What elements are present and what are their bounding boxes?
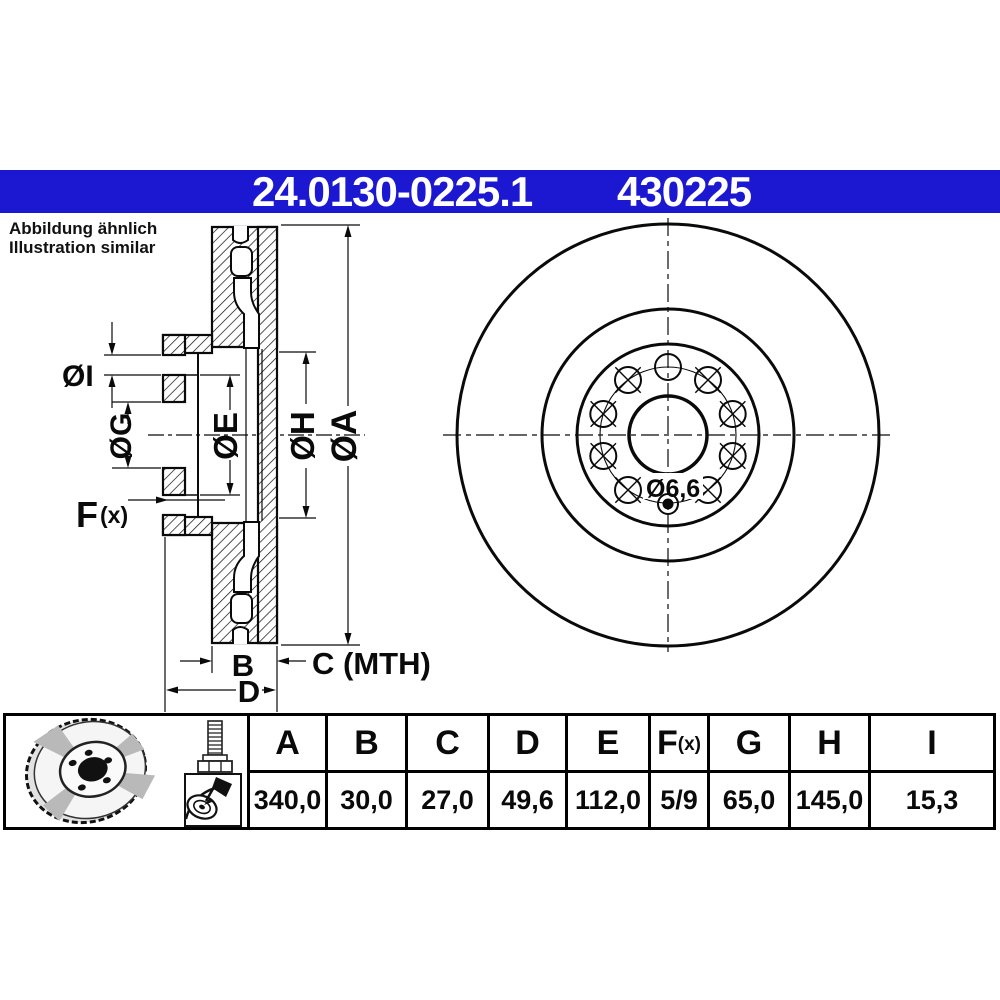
col-header: H xyxy=(791,716,868,773)
col-header: D xyxy=(490,716,565,773)
disc-paste-icon xyxy=(184,773,242,827)
col-value: 5/9 xyxy=(651,773,707,827)
col-value: 145,0 xyxy=(791,773,868,827)
table-col-d: D 49,6 xyxy=(487,716,565,827)
technical-drawing: ØI ØG ØE ØH ØA F (x) B C (MTH) D xyxy=(0,0,1000,1000)
table-photo-cell xyxy=(6,716,247,827)
dim-label-dia-i: ØI xyxy=(62,360,94,393)
table-col-f: F(x) 5/9 xyxy=(648,716,707,827)
table-col-b: B 30,0 xyxy=(325,716,405,827)
dimension-table: A 340,0 B 30,0 C 27,0 D 49,6 E 112,0 F(x… xyxy=(3,713,996,830)
col-header: A xyxy=(250,716,325,773)
dim-label-dia-a: ØA xyxy=(325,410,364,463)
table-col-a: A 340,0 xyxy=(247,716,325,827)
dim-label-f: F xyxy=(76,494,98,535)
col-header: G xyxy=(710,716,788,773)
mounting-bolt-icon xyxy=(192,720,238,774)
col-value: 65,0 xyxy=(710,773,788,827)
table-col-c: C 27,0 xyxy=(405,716,487,827)
col-value: 15,3 xyxy=(871,773,993,827)
col-header: F(x) xyxy=(651,716,707,773)
front-view xyxy=(443,218,893,652)
screw-hole-label: Ø6,6 xyxy=(646,475,700,503)
illustration-note: Abbildung ähnlich Illustration similar xyxy=(9,219,157,257)
col-value: 112,0 xyxy=(568,773,648,827)
brake-disc-photo-icon xyxy=(8,716,178,827)
col-header: E xyxy=(568,716,648,773)
table-col-g: G 65,0 xyxy=(707,716,788,827)
col-value: 30,0 xyxy=(328,773,405,827)
brake-disc-drawing-page: ØI ØG ØE ØH ØA F (x) B C (MTH) D xyxy=(0,0,1000,1000)
dim-label-c: C (MTH) xyxy=(312,646,431,681)
dim-label-dia-h: ØH xyxy=(284,411,321,461)
note-line-en: Illustration similar xyxy=(9,238,157,257)
dim-label-d: D xyxy=(238,674,260,709)
table-col-i: I 15,3 xyxy=(868,716,993,827)
col-value: 340,0 xyxy=(250,773,325,827)
reference-number: 430225 xyxy=(617,170,751,213)
col-header: B xyxy=(328,716,405,773)
col-header: C xyxy=(408,716,487,773)
table-col-e: E 112,0 xyxy=(565,716,648,827)
part-number: 24.0130-0225.1 xyxy=(252,170,532,213)
dim-label-dia-e: ØE xyxy=(207,412,244,460)
note-line-de: Abbildung ähnlich xyxy=(9,219,157,238)
col-header: I xyxy=(871,716,993,773)
dim-label-f-suffix: (x) xyxy=(100,502,128,528)
dim-label-dia-g: ØG xyxy=(105,413,138,460)
col-value: 49,6 xyxy=(490,773,565,827)
table-col-h: H 145,0 xyxy=(788,716,868,827)
col-value: 27,0 xyxy=(408,773,487,827)
part-number-bar: 24.0130-0225.1 430225 xyxy=(0,170,1000,213)
